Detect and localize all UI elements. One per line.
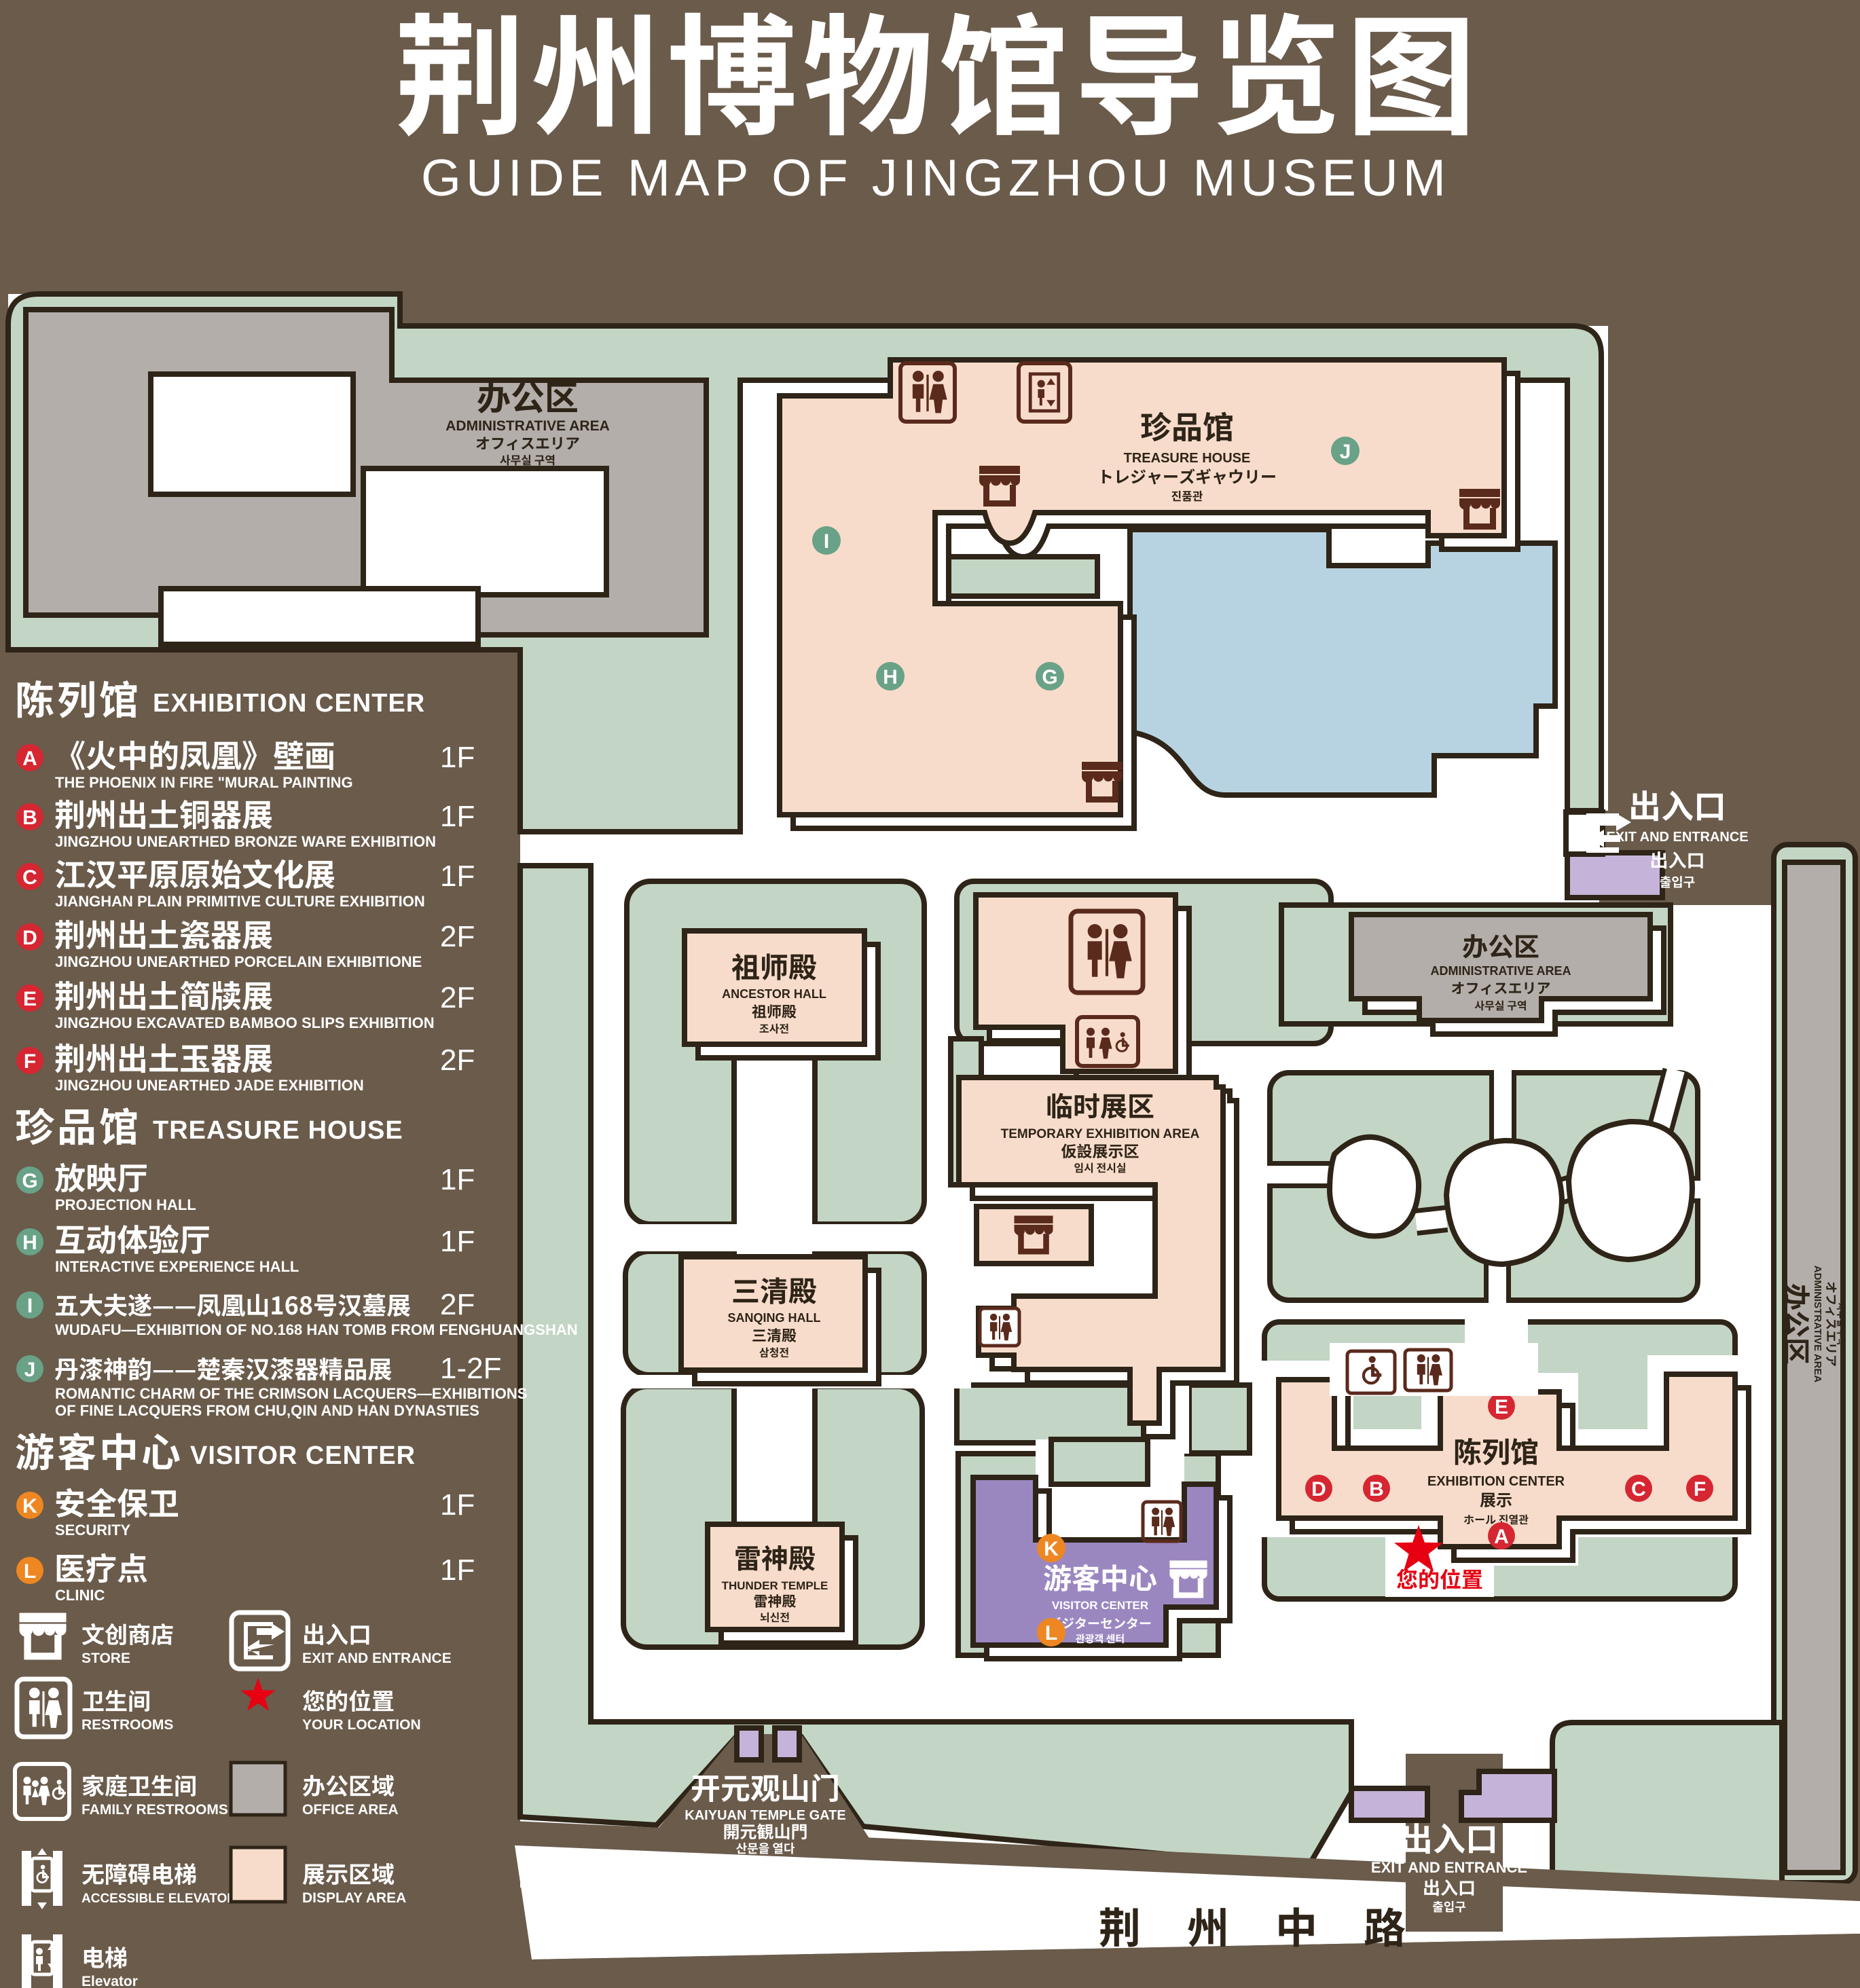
svg-text:INTERACTIVE EXPERIENCE HALL: INTERACTIVE EXPERIENCE HALL bbox=[55, 1258, 299, 1275]
svg-text:JIANGHAN PLAIN PRIMITIVE CULTU: JIANGHAN PLAIN PRIMITIVE CULTURE EXHIBIT… bbox=[55, 893, 425, 910]
svg-text:RESTROOMS: RESTROOMS bbox=[81, 1717, 173, 1733]
svg-text:VISITOR CENTER: VISITOR CENTER bbox=[1052, 1599, 1148, 1612]
svg-text:E: E bbox=[1495, 1396, 1508, 1418]
svg-text:DISPLAY AREA: DISPLAY AREA bbox=[302, 1890, 406, 1906]
svg-text:JINGZHOU UNEARTHED PORCELAIN E: JINGZHOU UNEARTHED PORCELAIN EXHIBITIONE bbox=[55, 953, 422, 970]
svg-text:SECURITY: SECURITY bbox=[55, 1522, 131, 1539]
svg-text:J: J bbox=[24, 1359, 36, 1381]
svg-text:F: F bbox=[1694, 1478, 1706, 1501]
svg-text:Elevator: Elevator bbox=[81, 1974, 138, 1988]
svg-text:L: L bbox=[24, 1560, 36, 1583]
svg-text:KAIYUAN TEMPLE GATE: KAIYUAN TEMPLE GATE bbox=[685, 1808, 845, 1823]
svg-text:A: A bbox=[22, 748, 37, 770]
svg-text:K: K bbox=[1044, 1538, 1059, 1560]
svg-text:2F: 2F bbox=[440, 1044, 475, 1077]
svg-text:EXHIBITION CENTER: EXHIBITION CENTER bbox=[153, 689, 425, 718]
svg-text:EXIT AND ENTRANCE: EXIT AND ENTRANCE bbox=[1606, 830, 1748, 845]
svg-text:THUNDER TEMPLE: THUNDER TEMPLE bbox=[722, 1579, 828, 1592]
svg-text:I: I bbox=[27, 1295, 33, 1317]
svg-text:STORE: STORE bbox=[81, 1651, 130, 1666]
svg-text:D: D bbox=[1311, 1478, 1326, 1501]
svg-text:A: A bbox=[1494, 1526, 1509, 1548]
svg-text:SANQING HALL: SANQING HALL bbox=[728, 1311, 821, 1325]
svg-text:J: J bbox=[1340, 441, 1351, 463]
svg-text:1F: 1F bbox=[440, 1225, 475, 1258]
svg-text:THE PHOENIX IN FIRE "MURAL PAI: THE PHOENIX IN FIRE "MURAL PAINTING bbox=[55, 774, 353, 791]
svg-text:OFFICE AREA: OFFICE AREA bbox=[302, 1802, 399, 1818]
svg-text:1F: 1F bbox=[440, 1163, 475, 1196]
svg-text:EXIT AND ENTRANCE: EXIT AND ENTRANCE bbox=[302, 1651, 452, 1666]
svg-text:H: H bbox=[22, 1232, 37, 1254]
svg-text:TEMPORARY EXHIBITION AREA: TEMPORARY EXHIBITION AREA bbox=[1001, 1127, 1200, 1141]
svg-text:JINGZHOU UNEARTHED JADE EXHIBI: JINGZHOU UNEARTHED JADE EXHIBITION bbox=[55, 1077, 364, 1094]
svg-text:B: B bbox=[22, 807, 37, 829]
svg-text:1F: 1F bbox=[440, 860, 475, 893]
svg-text:ANCESTOR HALL: ANCESTOR HALL bbox=[722, 987, 826, 1001]
svg-text:C: C bbox=[1631, 1478, 1646, 1501]
svg-text:TREASURE HOUSE: TREASURE HOUSE bbox=[1124, 451, 1251, 466]
svg-text:2F: 2F bbox=[440, 981, 475, 1014]
svg-text:D: D bbox=[22, 927, 37, 949]
svg-text:1F: 1F bbox=[440, 1488, 475, 1522]
svg-text:VISITOR CENTER: VISITOR CENTER bbox=[190, 1441, 416, 1470]
svg-text:I: I bbox=[824, 530, 829, 553]
svg-text:G: G bbox=[22, 1170, 37, 1192]
svg-text:GUIDE MAP OF JINGZHOU MUSEUM: GUIDE MAP OF JINGZHOU MUSEUM bbox=[421, 149, 1451, 207]
svg-text:YOUR LOCATION: YOUR LOCATION bbox=[302, 1717, 421, 1733]
svg-text:WUDAFU—EXHIBITION OF NO.168 HA: WUDAFU—EXHIBITION OF NO.168 HAN TOMB FRO… bbox=[55, 1321, 578, 1338]
svg-text:EXHIBITION CENTER: EXHIBITION CENTER bbox=[1427, 1474, 1565, 1489]
svg-text:E: E bbox=[23, 988, 37, 1010]
svg-text:ADMINISTRATIVE AREA: ADMINISTRATIVE AREA bbox=[445, 418, 610, 434]
svg-text:1-2F: 1-2F bbox=[440, 1352, 501, 1385]
svg-text:G: G bbox=[1042, 666, 1057, 688]
svg-text:CLINIC: CLINIC bbox=[55, 1587, 105, 1604]
svg-text:OF FINE LACQUERS FROM CHU,QIN: OF FINE LACQUERS FROM CHU,QIN AND HAN DY… bbox=[55, 1402, 479, 1419]
svg-text:TREASURE HOUSE: TREASURE HOUSE bbox=[153, 1116, 403, 1145]
svg-text:1F: 1F bbox=[440, 800, 475, 833]
svg-text:JINGZHOU UNEARTHED BRONZE WARE: JINGZHOU UNEARTHED BRONZE WARE EXHIBITIO… bbox=[55, 833, 436, 850]
svg-text:FAMILY RESTROOMS: FAMILY RESTROOMS bbox=[81, 1802, 228, 1818]
svg-text:ADMINISTRATIVE AREA: ADMINISTRATIVE AREA bbox=[1431, 964, 1571, 978]
svg-text:PROJECTION HALL: PROJECTION HALL bbox=[55, 1196, 196, 1213]
svg-text:B: B bbox=[1369, 1478, 1384, 1501]
svg-text:C: C bbox=[22, 866, 37, 889]
svg-text:2F: 2F bbox=[440, 920, 475, 953]
svg-text:L: L bbox=[1045, 1622, 1057, 1644]
svg-text:K: K bbox=[22, 1495, 37, 1517]
svg-text:F: F bbox=[24, 1050, 36, 1073]
svg-text:2F: 2F bbox=[440, 1288, 475, 1321]
svg-text:JINGZHOU EXCAVATED BAMBOO SLIP: JINGZHOU EXCAVATED BAMBOO SLIPS EXHIBITI… bbox=[55, 1014, 435, 1031]
svg-text:1F: 1F bbox=[440, 1553, 475, 1587]
svg-text:ADMINISTRATIVE AREA: ADMINISTRATIVE AREA bbox=[1812, 1266, 1823, 1383]
svg-text:1F: 1F bbox=[440, 741, 475, 774]
svg-text:H: H bbox=[883, 666, 898, 688]
svg-text:EXIT AND ENTRANCE: EXIT AND ENTRANCE bbox=[1371, 1859, 1527, 1876]
svg-text:ROMANTIC CHARM OF THE CRIMSON: ROMANTIC CHARM OF THE CRIMSON LACQUERS—E… bbox=[55, 1385, 527, 1402]
svg-text:ACCESSIBLE ELEVATOR: ACCESSIBLE ELEVATOR bbox=[81, 1892, 236, 1906]
